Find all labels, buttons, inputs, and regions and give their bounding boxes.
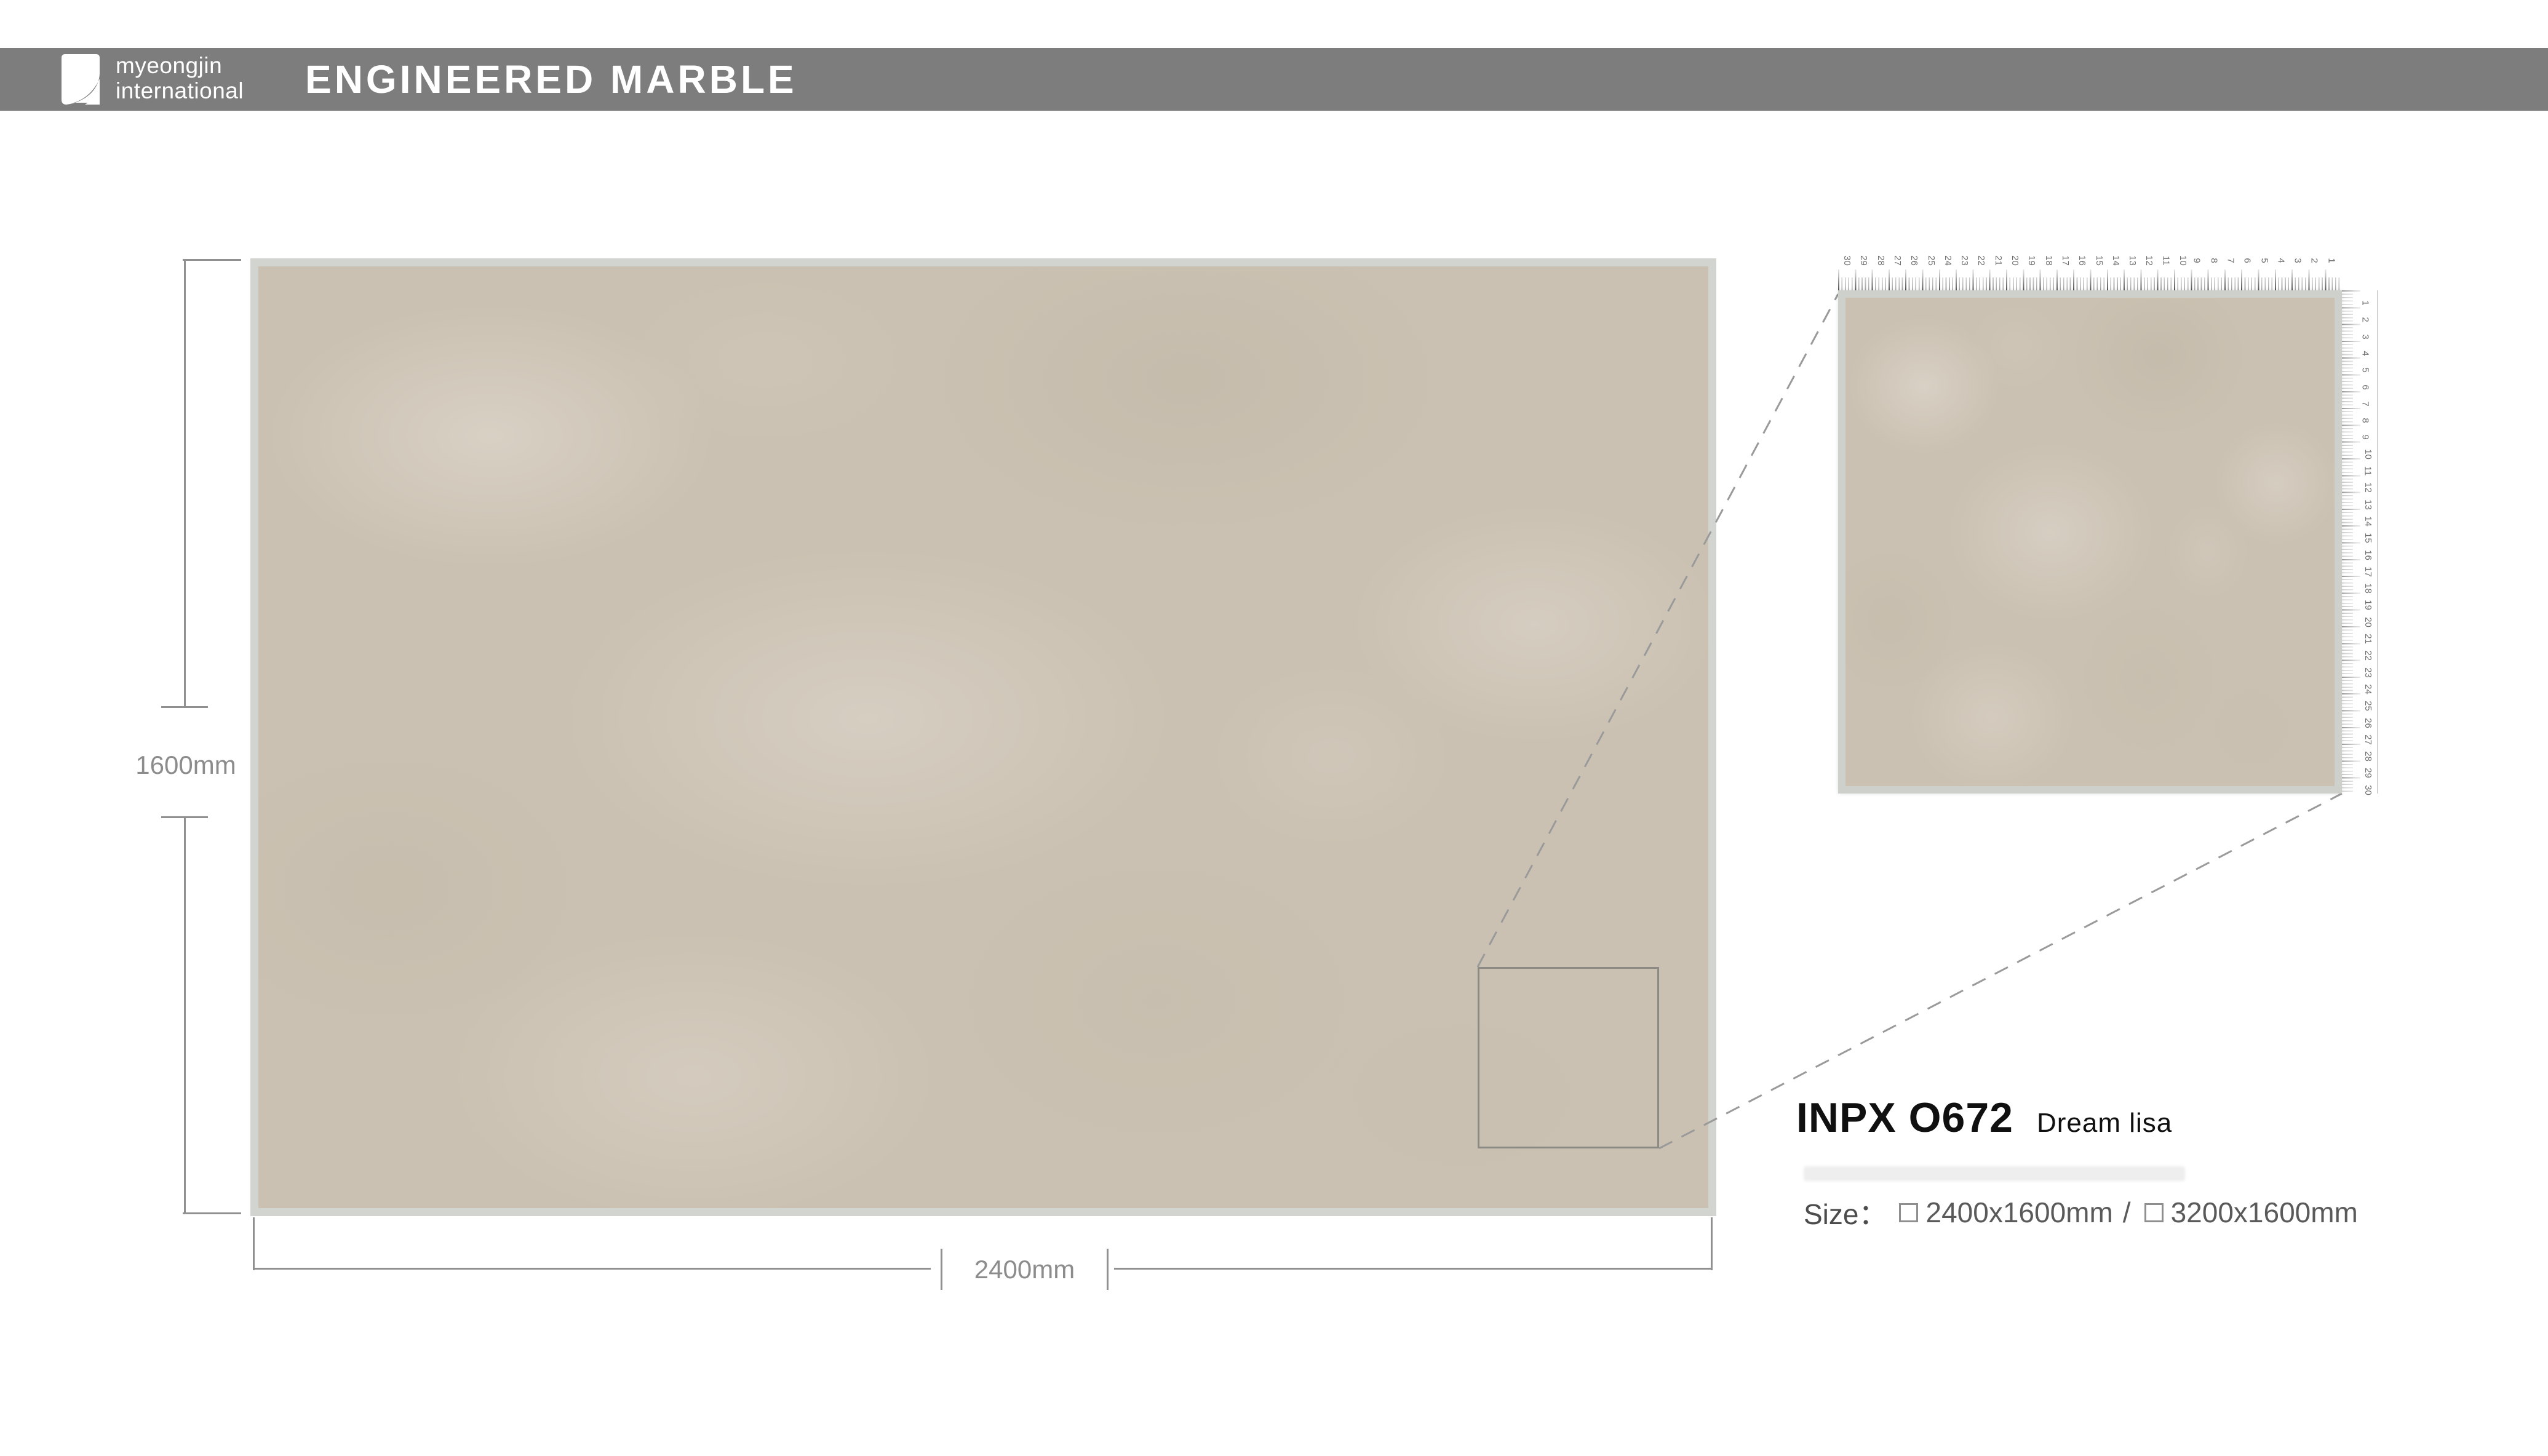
spec-sheet-page: myeongjin international ENGINEERED MARBL… xyxy=(0,0,2548,1456)
size-label: Size： xyxy=(1804,1192,1887,1233)
product-code: INPX O672 xyxy=(1796,1094,2013,1142)
ruler-number-right: 24 xyxy=(2363,684,2373,694)
ruler-number-right: 3 xyxy=(2360,334,2371,339)
ruler-number-top: 24 xyxy=(1943,255,1953,266)
logo-wordmark: myeongjin international xyxy=(116,53,244,103)
detail-top-ruler-ticks xyxy=(1838,269,2342,290)
ruler-number-top: 10 xyxy=(2178,255,2188,266)
size-checkbox-1-icon[interactable] xyxy=(1899,1203,1918,1222)
ruler-number-right: 15 xyxy=(2363,533,2373,543)
size-checkbox-2-icon[interactable] xyxy=(2144,1203,2164,1222)
size-option-2: 3200x1600mm xyxy=(2171,1196,2358,1229)
ruler-number-top: 19 xyxy=(2026,255,2037,266)
detail-right-ruler-ticks xyxy=(2342,290,2360,794)
faded-text-artifact xyxy=(1804,1166,2185,1181)
ruler-number-top: 18 xyxy=(2043,255,2053,266)
header-bar: myeongjin international ENGINEERED MARBL… xyxy=(0,48,2548,111)
dim-ext-right xyxy=(1711,1217,1713,1270)
top-ruler-haze xyxy=(1838,269,2342,290)
company-logo-icon xyxy=(62,54,100,105)
detail-right-ruler-numbers: 1234567891011121314151617181920212223242… xyxy=(2361,290,2377,794)
ruler-number-top: 8 xyxy=(2208,258,2219,263)
dim-ext-left xyxy=(253,1217,255,1270)
ruler-number-right: 7 xyxy=(2360,401,2371,406)
ruler-number-top: 1 xyxy=(2326,258,2336,263)
ruler-number-right: 9 xyxy=(2360,435,2371,440)
ruler-number-right: 11 xyxy=(2362,466,2373,476)
ruler-number-top: 21 xyxy=(1993,255,2004,266)
detail-top-ruler-numbers: 3029282726252423222120191817161514131211… xyxy=(1838,253,2342,269)
ruler-number-top: 11 xyxy=(2160,256,2171,266)
ruler-number-top: 30 xyxy=(1842,255,1852,266)
ruler-number-right: 12 xyxy=(2363,482,2373,493)
ruler-number-top: 28 xyxy=(1875,255,1885,266)
ruler-number-top: 22 xyxy=(1976,255,1986,266)
ruler-number-top: 16 xyxy=(2077,255,2087,266)
ruler-tape-edge xyxy=(2377,290,2378,794)
ruler-number-right: 26 xyxy=(2363,718,2373,728)
ruler-number-right: 16 xyxy=(2363,550,2373,560)
dim-line-vertical-upper xyxy=(184,259,186,707)
dim-line-vertical-lower xyxy=(184,816,186,1214)
ruler-number-top: 4 xyxy=(2275,258,2286,263)
ruler-number-top: 29 xyxy=(1858,255,1869,266)
dim-line-horizontal-left xyxy=(253,1268,931,1270)
size-separator: / xyxy=(2123,1196,2131,1229)
ruler-number-right: 17 xyxy=(2363,567,2373,577)
ruler-number-right: 10 xyxy=(2363,449,2373,459)
ruler-number-top: 5 xyxy=(2259,258,2269,263)
ruler-number-top: 2 xyxy=(2309,258,2320,263)
ruler-number-top: 20 xyxy=(2010,255,2020,266)
ruler-number-top: 23 xyxy=(1959,255,1970,266)
ruler-number-right: 23 xyxy=(2363,667,2373,678)
ruler-number-right: 5 xyxy=(2360,368,2371,373)
ruler-number-top: 27 xyxy=(1892,255,1903,266)
size-option-1: 2400x1600mm xyxy=(1925,1196,2112,1229)
ruler-number-top: 17 xyxy=(2060,255,2071,266)
ruler-number-right: 22 xyxy=(2363,650,2373,661)
ruler-number-top: 3 xyxy=(2293,258,2303,263)
ruler-number-top: 26 xyxy=(1909,255,1919,266)
ruler-number-right: 20 xyxy=(2363,617,2373,627)
ruler-number-right: 6 xyxy=(2360,384,2371,389)
ruler-number-right: 27 xyxy=(2363,734,2373,745)
ruler-number-right: 25 xyxy=(2363,701,2373,711)
ruler-number-right: 8 xyxy=(2360,418,2371,423)
ruler-number-top: 25 xyxy=(1925,255,1936,266)
ruler-number-right: 18 xyxy=(2363,583,2373,594)
ruler-number-right: 19 xyxy=(2363,600,2373,611)
dim-line-horizontal-right xyxy=(1114,1268,1712,1270)
product-info: INPX O672 Dream lisa xyxy=(1796,1094,2172,1142)
ruler-number-right: 30 xyxy=(2363,785,2373,795)
ruler-number-top: 14 xyxy=(2111,255,2121,266)
dim-tick-right xyxy=(1107,1249,1109,1290)
ruler-number-right: 21 xyxy=(2363,634,2373,644)
ruler-number-top: 6 xyxy=(2242,258,2253,263)
dim-break-bar-upper xyxy=(161,706,208,708)
ruler-number-right: 28 xyxy=(2363,751,2373,762)
ruler-number-top: 12 xyxy=(2144,255,2154,266)
dim-cap-top xyxy=(183,259,241,261)
product-name: Dream lisa xyxy=(2037,1108,2172,1139)
ruler-number-top: 15 xyxy=(2093,255,2104,266)
right-ruler-haze xyxy=(2342,290,2360,794)
size-options: Size： 2400x1600mm / 3200x1600mm xyxy=(1804,1192,2358,1233)
ruler-number-right: 2 xyxy=(2360,317,2371,322)
ruler-number-right: 4 xyxy=(2360,351,2371,356)
ruler-number-top: 13 xyxy=(2127,255,2138,266)
width-dimension-label: 2400mm xyxy=(942,1255,1107,1284)
height-dimension-label: 1600mm xyxy=(100,750,272,780)
ruler-number-right: 1 xyxy=(2360,300,2371,305)
ruler-number-right: 14 xyxy=(2363,516,2373,527)
ruler-number-top: 7 xyxy=(2226,258,2236,263)
ruler-number-right: 29 xyxy=(2363,768,2373,779)
page-title: ENGINEERED MARBLE xyxy=(305,57,797,102)
ruler-number-right: 13 xyxy=(2363,499,2373,510)
logo-line1: myeongjin xyxy=(116,53,244,78)
zoom-region-outline xyxy=(1478,967,1659,1148)
ruler-number-top: 9 xyxy=(2192,258,2202,263)
logo-line2: international xyxy=(116,78,244,103)
dim-cap-bottom xyxy=(183,1212,241,1214)
detail-zoom-image xyxy=(1838,290,2342,794)
